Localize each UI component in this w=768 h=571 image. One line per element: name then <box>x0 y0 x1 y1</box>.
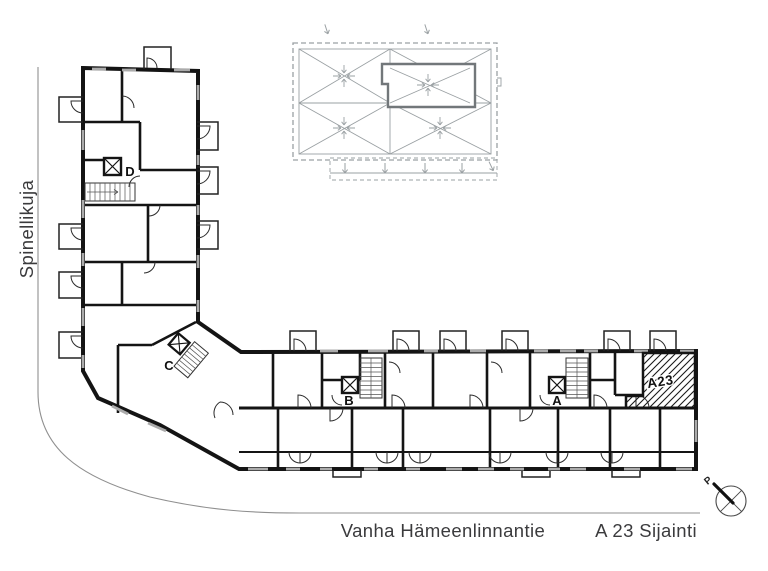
street-label-bottom: Vanha Hämeenlinnantie <box>341 520 546 541</box>
floor-plan-page: D C B A A23 P Spinellikuja Vanha Hämeenl… <box>0 0 768 571</box>
compass-rose: P <box>702 475 746 516</box>
stairwell-label-b: B <box>344 393 353 408</box>
roof-plan <box>293 24 501 180</box>
floor-plan-canvas: D C B A A23 P Spinellikuja Vanha Hämeenl… <box>0 0 768 571</box>
compass-north-needle <box>714 484 733 503</box>
stairwell-label-c: C <box>164 358 174 373</box>
street-label-left: Spinellikuja <box>16 180 37 279</box>
building-plan: D C B A A23 <box>59 47 696 477</box>
stairwell-label-a: A <box>552 393 562 408</box>
caption-a23-location: A 23 Sijainti <box>595 520 697 541</box>
stairwell-label-d: D <box>125 164 134 179</box>
compass-north-label: P <box>702 475 714 488</box>
roof-lower-strip <box>330 158 497 180</box>
